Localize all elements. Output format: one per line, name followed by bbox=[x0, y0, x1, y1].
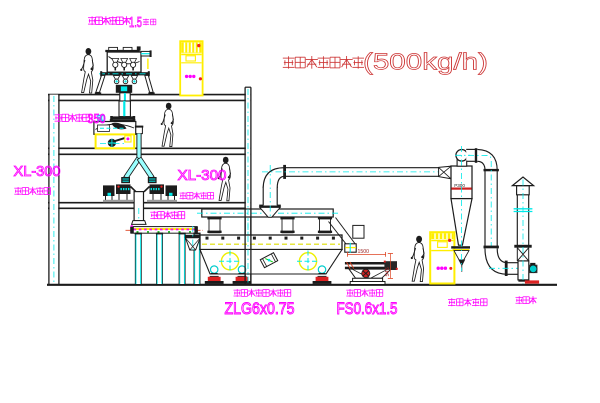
svg-text:545: 545 bbox=[385, 267, 391, 276]
svg-text:(500kg/h): (500kg/h) bbox=[363, 49, 488, 75]
svg-text:XL-300: XL-300 bbox=[178, 168, 227, 184]
svg-text:1500: 1500 bbox=[358, 249, 370, 255]
svg-text:350: 350 bbox=[88, 112, 106, 126]
svg-text:FS0.6x1.5: FS0.6x1.5 bbox=[337, 300, 398, 318]
svg-text:ZLG6x0.75: ZLG6x0.75 bbox=[225, 300, 295, 318]
svg-text:P300: P300 bbox=[454, 183, 465, 188]
svg-text:1.5: 1.5 bbox=[129, 15, 142, 31]
svg-text:XL-300: XL-300 bbox=[14, 164, 61, 180]
